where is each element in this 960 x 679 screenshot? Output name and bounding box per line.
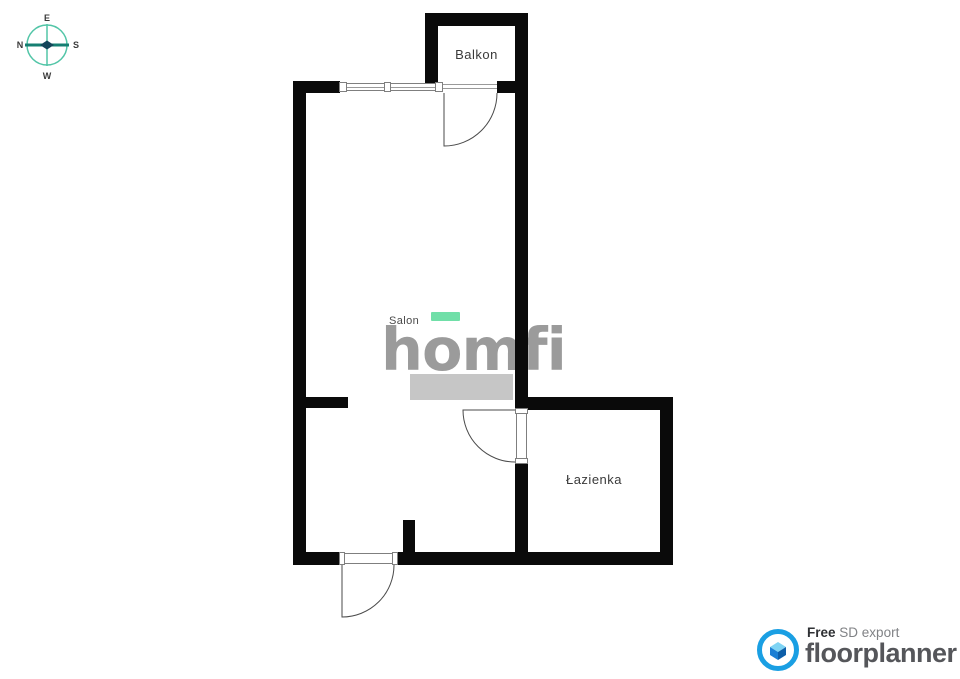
wall-stub-left <box>306 397 348 408</box>
homfi-watermark: homfi <box>381 320 566 379</box>
window-mullion-right <box>435 82 443 92</box>
wall-bottom-left <box>293 552 340 565</box>
compass-label-west: W <box>43 71 52 81</box>
wall-stub-bottom <box>403 520 415 552</box>
wall-right-upper <box>515 13 528 408</box>
bathroom-door-swing <box>463 410 515 462</box>
wall-right-lower <box>515 462 528 565</box>
bathroom-door-jamb-top <box>515 408 528 414</box>
floorplanner-house-icon <box>766 638 790 662</box>
room-label-balkon: Balkon <box>425 47 528 62</box>
compass-label-east: E <box>44 13 50 23</box>
bathroom-door-frame <box>516 410 527 462</box>
floorplanner-logo-badge <box>757 629 799 671</box>
entrance-door-frame <box>340 553 397 564</box>
room-label-salon: Salon <box>389 315 419 327</box>
wall-bottom-right <box>397 552 673 565</box>
window-mullion-left <box>339 82 347 92</box>
wall-bathroom-top <box>528 397 660 410</box>
bathroom-door-jamb-bottom <box>515 458 528 464</box>
floor-plan-canvas: E S W N homfi Balkon Salon Łazienka <box>0 0 960 679</box>
homfi-accent-bar <box>431 312 460 321</box>
entrance-door-jamb-left <box>339 552 345 565</box>
wall-balcony-top <box>425 13 528 26</box>
compass-label-north: N <box>17 40 24 50</box>
wall-salon-top-right <box>497 81 515 93</box>
balcony-door-threshold <box>443 84 497 89</box>
entrance-door-jamb-right <box>392 552 398 565</box>
wall-left <box>293 81 306 565</box>
window-glass-line <box>341 87 442 88</box>
window-top <box>340 83 443 91</box>
entrance-door-swing <box>342 565 394 617</box>
floorplanner-brand-text: floorplanner <box>805 638 957 669</box>
compass-needle <box>40 41 54 50</box>
room-label-lazienka: Łazienka <box>528 472 660 487</box>
compass-rose: E S W N <box>7 7 87 87</box>
wall-bathroom-right <box>660 397 673 565</box>
compass-label-south: S <box>73 40 79 50</box>
balcony-door-swing <box>444 93 497 146</box>
window-mullion-middle <box>384 82 391 92</box>
